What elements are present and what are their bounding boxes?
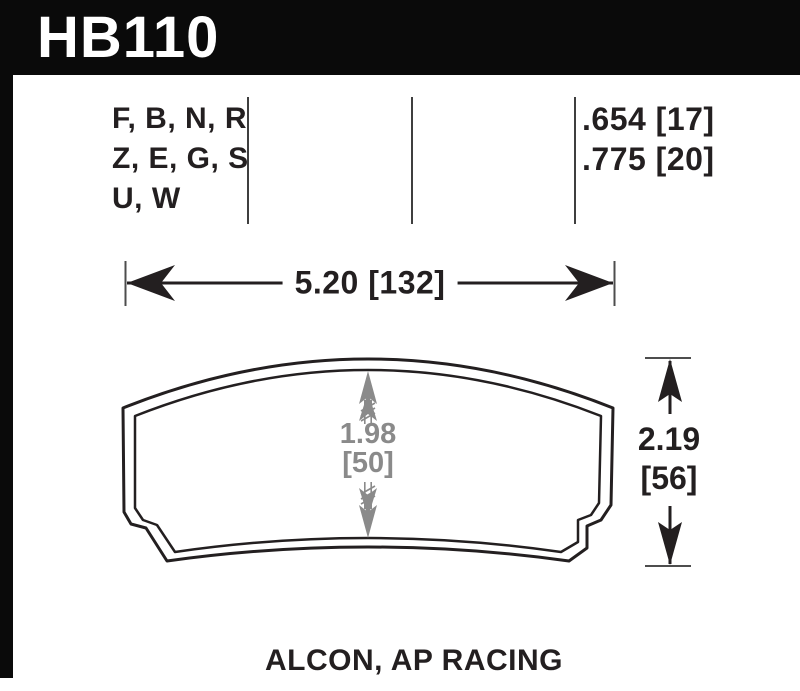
pad-height-millimeters: [50] xyxy=(340,449,396,478)
height-dimension-label: 2.19 [56] xyxy=(638,420,700,498)
spec-sheet: HB110 F, B, N, R Z, E, G, S U, W .654 [1… xyxy=(0,0,800,691)
width-dimension-label: 5.20 [132] xyxy=(283,265,458,302)
pad-height-inches: 1.98 xyxy=(340,420,396,449)
applications-label: ALCON, AP RACING xyxy=(265,644,563,678)
pad-height-dimension-label: 1.98 [50] xyxy=(340,420,396,478)
technical-drawing xyxy=(0,0,800,691)
height-millimeters: [56] xyxy=(638,459,700,498)
height-inches: 2.19 xyxy=(638,420,700,459)
